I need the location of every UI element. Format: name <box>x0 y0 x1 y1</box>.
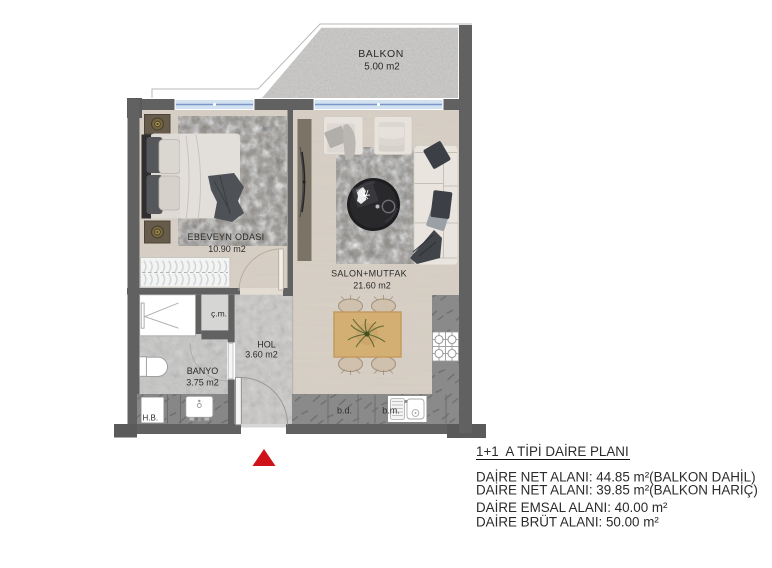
svg-text:BALKON: BALKON <box>358 48 404 60</box>
svg-text:SALON+MUTFAK: SALON+MUTFAK <box>331 269 407 279</box>
svg-text:3.75 m2: 3.75 m2 <box>186 378 219 388</box>
svg-text:b.m.: b.m. <box>382 406 400 416</box>
svg-text:10.90 m2: 10.90 m2 <box>208 244 246 254</box>
svg-text:ç.m.: ç.m. <box>211 309 227 319</box>
svg-text:H.B.: H.B. <box>143 414 159 423</box>
svg-text:DAİRE EMSAL ALANI: 40.00 m²: DAİRE EMSAL ALANI: 40.00 m² <box>476 500 668 515</box>
svg-text:DAİRE NET ALANI: 39.85 m²(BALK: DAİRE NET ALANI: 39.85 m²(BALKON HARİÇ) <box>476 483 758 498</box>
svg-text:EBEVEYN ODASI: EBEVEYN ODASI <box>188 232 265 242</box>
svg-text:DAİRE BRÜT ALANI: 50.00 m²: DAİRE BRÜT ALANI: 50.00 m² <box>476 515 659 530</box>
svg-text:3.60 m2: 3.60 m2 <box>245 350 278 360</box>
svg-text:5.00 m2: 5.00 m2 <box>364 62 399 73</box>
svg-text:HOL: HOL <box>257 340 276 350</box>
svg-text:b.d.: b.d. <box>337 406 352 416</box>
svg-text:21.60 m2: 21.60 m2 <box>353 281 391 291</box>
svg-text:1+1 A TİPİ DAİRE PLANI: 1+1 A TİPİ DAİRE PLANI <box>476 444 629 459</box>
svg-text:BANYO: BANYO <box>187 366 219 376</box>
